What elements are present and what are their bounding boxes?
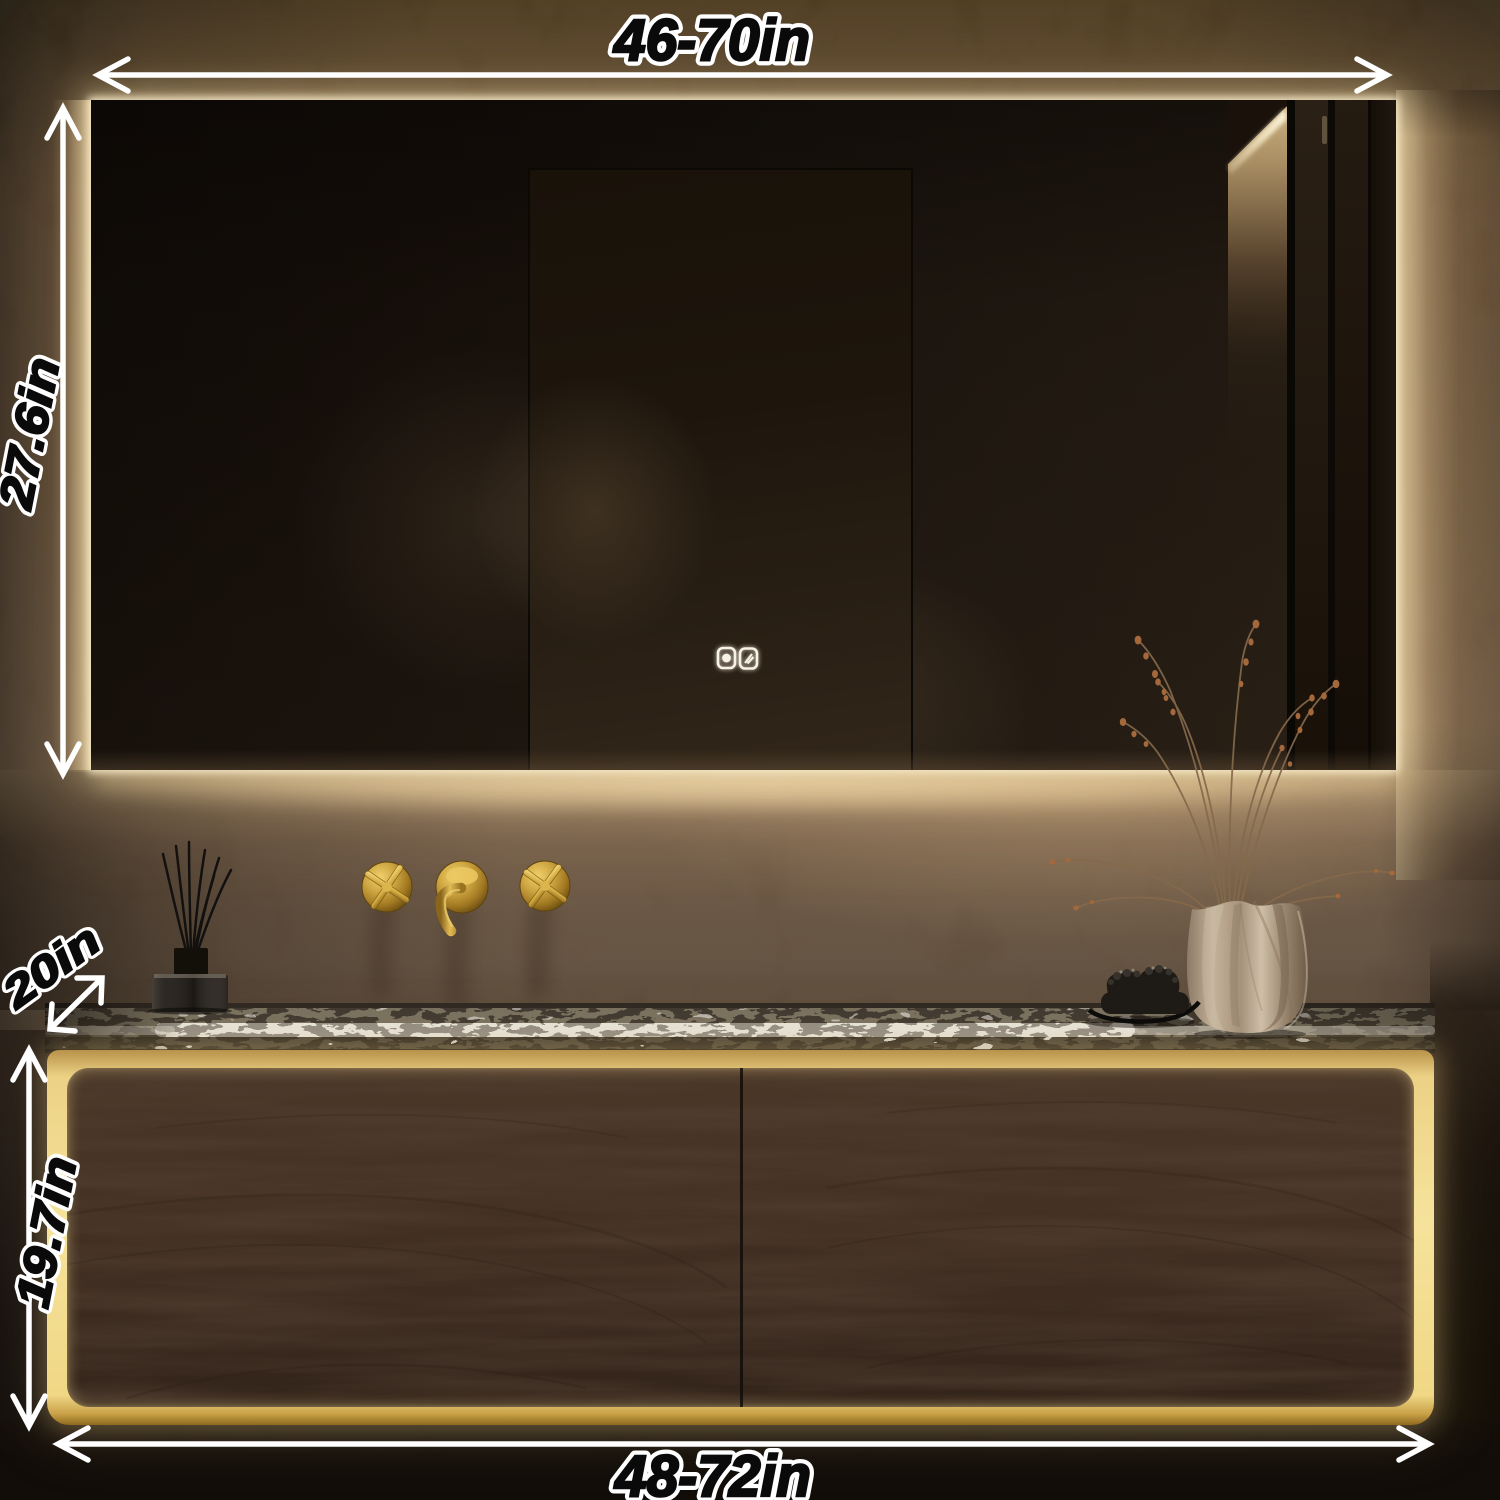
svg-text:20in: 20in bbox=[0, 916, 109, 1018]
svg-text:19.7in: 19.7in bbox=[5, 1152, 86, 1311]
svg-text:46-70in: 46-70in bbox=[613, 8, 810, 73]
svg-text:48-72in: 48-72in bbox=[614, 1444, 811, 1500]
svg-text:27.6in: 27.6in bbox=[0, 353, 69, 513]
